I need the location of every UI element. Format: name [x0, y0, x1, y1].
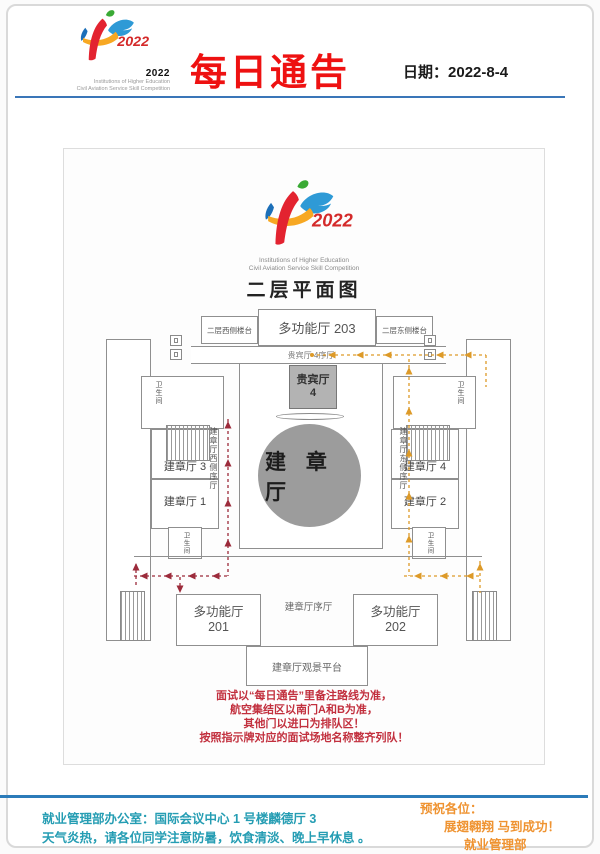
- notice-line-2: 航空集结区以南门A和B为准，: [64, 703, 544, 717]
- room-viewing-platform: 建章厅观景平台: [246, 646, 368, 686]
- floorplan-drawing: 二层西侧楼台 多功能厅 203 二层东侧楼台 贵宾厅 4序厅 贵宾厅 4 建 章…: [106, 309, 511, 689]
- room-west-balcony: 二层西侧楼台: [201, 316, 258, 344]
- footer-wish-line1: 预祝各位：: [420, 800, 560, 818]
- room-multi-201: 多功能厅 201: [176, 594, 261, 646]
- east-restroom-lower: 卫生间: [412, 527, 446, 559]
- label-toilet-west-top: 卫生间: [153, 381, 163, 425]
- footer-wish-line3: 就业管理部: [464, 836, 560, 854]
- stairs-icon-east: [472, 591, 497, 641]
- date-label: 日期：: [403, 64, 448, 81]
- label-multi202-line1: 多功能厅: [370, 605, 420, 620]
- label-main-hall: 建 章 厅: [258, 446, 361, 506]
- label-toilet-east-lower: 卫生间: [424, 532, 434, 555]
- footer-office-line: 就业管理部办公室：国际会议中心 1 号楼麟德厅 3: [42, 810, 370, 829]
- lower-lobby-wall: [134, 556, 482, 557]
- notice-line-3: 其他门以进口为排队区！: [64, 717, 544, 731]
- floorplan-logo-icon: [241, 175, 367, 257]
- stairs-icon-west: [120, 591, 145, 641]
- label-multi201-line2: 201: [208, 620, 229, 635]
- label-multi202-line2: 202: [385, 620, 406, 635]
- elevator-icon: [170, 335, 182, 346]
- floorplan-logo-subtitle-line1: Institutions of Higher Education: [64, 257, 544, 265]
- date-line: 日期：2022-8-4: [403, 61, 508, 82]
- floorplan-title: 二层平面图: [64, 275, 544, 302]
- room-multi-202: 多功能厅 202: [353, 594, 438, 646]
- footer-wish-line2: 展翅翱翔 马到成功！: [444, 818, 560, 836]
- label-vip4-line2: 4: [310, 387, 316, 400]
- west-restroom-lower: 卫生间: [168, 527, 202, 559]
- header-divider: [15, 96, 565, 98]
- label-east-corridor: 建章厅东侧序厅: [398, 427, 409, 535]
- route-notice: 面试以“每日通告”里备注路线为准， 航空集结区以南门A和B为准， 其他门以进口为…: [64, 689, 544, 745]
- label-jz-lobby: 建章厅序厅: [261, 599, 356, 613]
- elevator-icons-east: [424, 335, 440, 373]
- page-title: 每日通告: [150, 42, 390, 96]
- label-toilet-east-top: 卫生间: [455, 381, 465, 425]
- floorplan-logo-subtitle-line2: Civil Aviation Service Skill Competition: [64, 265, 544, 273]
- escalator-icon-east: [406, 425, 450, 461]
- elevator-icon: [170, 349, 182, 360]
- escalator-icon-west: [166, 425, 210, 461]
- footer-office-info: 就业管理部办公室：国际会议中心 1 号楼麟德厅 3 天气炎热，请各位同学注意防暑…: [42, 810, 370, 848]
- stage-oval: [276, 413, 344, 420]
- elevator-icon: [424, 349, 436, 360]
- floorplan-logo-subtitle: Institutions of Higher Education Civil A…: [64, 257, 544, 273]
- label-toilet-west-lower: 卫生间: [180, 532, 190, 555]
- label-multi201-line1: 多功能厅: [193, 605, 243, 620]
- notice-line-1: 面试以“每日通告”里备注路线为准，: [64, 689, 544, 703]
- footer-divider: [0, 795, 588, 798]
- label-vip4-line1: 贵宾厅: [297, 374, 330, 387]
- competition-logo-icon: [58, 6, 164, 70]
- label-vip4-lobby: 贵宾厅 4序厅: [256, 349, 366, 361]
- footer-wishes: 预祝各位： 展翅翱翔 马到成功！ 就业管理部: [420, 800, 560, 854]
- elevator-icon: [424, 335, 436, 346]
- label-west-corridor: 建章厅西侧序厅: [208, 427, 219, 535]
- room-vip4: 贵宾厅 4: [289, 365, 337, 409]
- elevator-icons-west: [170, 335, 186, 373]
- footer-weather-line: 天气炎热，请各位同学注意防暑，饮食清淡、晚上早休息 。: [42, 829, 370, 848]
- notice-line-4: 按照指示牌对应的面试场地名称整齐列队！: [64, 731, 544, 745]
- date-value: 2022-8-4: [448, 64, 508, 81]
- floorplan-image: Institutions of Higher Education Civil A…: [63, 148, 545, 765]
- room-multi-203: 多功能厅 203: [258, 309, 376, 346]
- room-main-hall: 建 章 厅: [258, 424, 361, 527]
